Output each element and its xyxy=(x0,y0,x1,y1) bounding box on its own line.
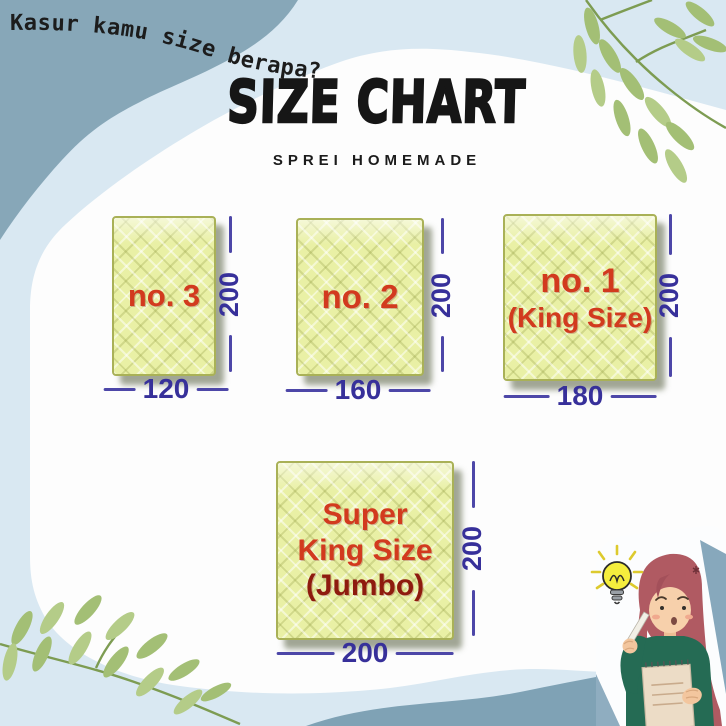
mattress-sublabel: (Jumbo) xyxy=(306,568,424,603)
mattress-no1: no. 1 (King Size) xyxy=(503,214,657,381)
dimension-line xyxy=(395,652,453,655)
height-value-box: 200 xyxy=(648,259,692,333)
dimension-line xyxy=(441,218,444,254)
mattress-diagram-super-king: Super King Size (Jumbo) 200 200 xyxy=(276,461,516,696)
width-value: 160 xyxy=(335,376,382,404)
mattress-label: Super xyxy=(322,497,407,532)
dimension-line xyxy=(472,590,475,637)
height-value-box: 200 xyxy=(451,512,495,586)
mattress-label: no. 1 xyxy=(540,261,619,301)
mattress-label: no. 3 xyxy=(128,278,200,315)
width-value: 120 xyxy=(143,375,190,403)
height-value: 200 xyxy=(217,271,244,316)
height-dimension: 200 xyxy=(420,218,464,372)
width-dimension: 200 xyxy=(277,639,454,667)
page-title: SIZE CHART xyxy=(227,68,527,136)
height-value-box: 200 xyxy=(208,257,252,331)
dimension-line xyxy=(441,336,444,372)
dimension-line xyxy=(472,461,475,508)
width-value: 180 xyxy=(557,382,604,410)
height-value: 200 xyxy=(460,526,487,571)
mattress-sublabel: (King Size) xyxy=(508,301,653,334)
dimension-line xyxy=(277,652,335,655)
mattress-super-king: Super King Size (Jumbo) xyxy=(276,461,454,640)
dimension-line xyxy=(286,389,328,392)
dimension-line xyxy=(504,395,550,398)
dimension-line xyxy=(669,214,672,255)
height-value: 200 xyxy=(657,273,684,318)
mattress-diagram-no3: no. 3 200 120 xyxy=(112,216,282,426)
width-dimension: 180 xyxy=(504,382,657,410)
width-dimension: 160 xyxy=(286,376,431,404)
dimension-line xyxy=(610,395,656,398)
height-dimension: 200 xyxy=(208,216,252,372)
height-dimension: 200 xyxy=(648,214,692,377)
mattress-diagram-no2: no. 2 200 160 xyxy=(296,218,496,428)
height-value: 200 xyxy=(429,272,456,317)
dimension-line xyxy=(229,216,232,253)
dimension-line xyxy=(669,337,672,378)
dimension-line xyxy=(196,388,228,391)
dimension-line xyxy=(388,389,430,392)
mattress-no3: no. 3 xyxy=(112,216,216,376)
height-dimension: 200 xyxy=(451,461,495,636)
width-dimension: 120 xyxy=(104,375,229,403)
width-value: 200 xyxy=(342,639,389,667)
lightbulb-icon xyxy=(588,540,646,628)
mattress-no2: no. 2 xyxy=(296,218,424,376)
height-value-box: 200 xyxy=(420,258,464,332)
leaf-branch-icon xyxy=(540,0,726,186)
leaf-branch-icon xyxy=(0,566,252,726)
mattress-label: King Size xyxy=(297,533,432,568)
dimension-line xyxy=(104,388,136,391)
mattress-label: no. 2 xyxy=(321,278,398,317)
mattress-diagram-no1-king: no. 1 (King Size) 200 180 xyxy=(503,214,723,429)
dimension-line xyxy=(229,335,232,372)
